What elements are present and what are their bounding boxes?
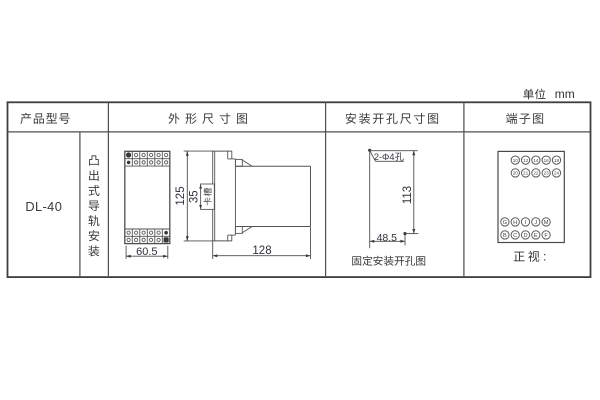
svg-text:125: 125 <box>175 186 187 205</box>
svg-text:J: J <box>534 220 537 226</box>
svg-text:18: 18 <box>554 158 560 163</box>
svg-text:14: 14 <box>533 158 539 163</box>
svg-text:G: G <box>503 220 507 226</box>
svg-text:24: 24 <box>554 171 560 176</box>
svg-text:35: 35 <box>189 190 201 203</box>
svg-text:22: 22 <box>533 171 539 176</box>
svg-text:12: 12 <box>523 158 529 163</box>
svg-text::: : <box>543 249 546 263</box>
svg-text:F: F <box>544 233 548 239</box>
svg-text:mm: mm <box>555 87 575 101</box>
svg-text:D: D <box>523 233 527 239</box>
svg-text:20: 20 <box>513 171 519 176</box>
svg-text:60.5: 60.5 <box>136 246 157 258</box>
svg-text:48.5: 48.5 <box>377 232 398 244</box>
svg-text:23: 23 <box>544 171 550 176</box>
svg-text:10: 10 <box>513 158 519 163</box>
svg-text:113: 113 <box>402 186 414 204</box>
svg-text:H: H <box>513 220 517 226</box>
svg-text:M: M <box>544 220 549 226</box>
svg-text:128: 128 <box>252 245 271 257</box>
svg-text:B: B <box>503 233 507 239</box>
svg-text:16: 16 <box>544 158 550 163</box>
svg-text:2-Φ4: 2-Φ4 <box>374 152 395 162</box>
svg-text:21: 21 <box>523 171 529 176</box>
svg-text:DL-40: DL-40 <box>25 199 62 214</box>
svg-text:C: C <box>513 233 517 239</box>
svg-text:E: E <box>534 233 538 239</box>
